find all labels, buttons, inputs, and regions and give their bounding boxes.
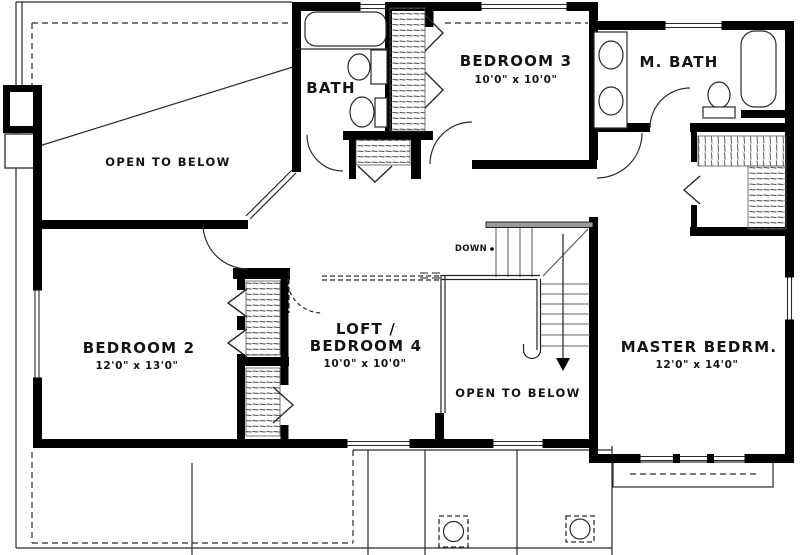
floor-plan: OPEN TO BELOW BATH BEDROOM 3 10'0" x 10'… [0, 0, 800, 555]
room-label-loft-line1: LOFT / [336, 320, 396, 338]
room-label-open-to-below-lower: OPEN TO BELOW [455, 386, 581, 400]
master-bedroom-door [597, 133, 642, 178]
bedroom3-closet-doors [425, 15, 443, 108]
mbath-tub-ledge [741, 110, 793, 118]
down-leader-dot [490, 247, 494, 251]
plan-linework [0, 0, 800, 555]
staircase [420, 222, 593, 413]
room-dims-bedroom2: 12'0" x 13'0" [95, 360, 178, 372]
bedroom2-door [203, 224, 248, 269]
diagonal-line [20, 66, 296, 152]
stair-break-line [543, 229, 588, 276]
stair-label-down: DOWN [455, 244, 487, 254]
bath-toilet-tank [375, 98, 387, 127]
room-dims-master-bedroom: 12'0" x 14'0" [655, 359, 738, 371]
mbath-toilet [708, 82, 730, 108]
bathtub [305, 12, 386, 46]
loft-dashed-wall [289, 271, 441, 313]
loft-optional-door [287, 278, 322, 313]
linen-closet-door [358, 166, 392, 182]
angled-railing [246, 170, 296, 219]
mbath-tub [741, 31, 776, 107]
room-label-master-bedroom: MASTER BEDRM. [621, 338, 778, 356]
bath-door [307, 135, 343, 171]
room-label-master-bath: M. BATH [640, 53, 719, 71]
down-arrow [556, 234, 570, 371]
master-bath-fixtures [594, 31, 793, 128]
bath-toilet [350, 97, 374, 127]
room-dims-loft: 10'0" x 10'0" [323, 358, 406, 370]
mbath-sink-1 [599, 41, 623, 69]
room-label-open-to-below-upper: OPEN TO BELOW [105, 155, 231, 169]
bath-sink [348, 54, 370, 80]
bedroom3-door [430, 122, 472, 164]
bath-sink-counter [371, 50, 387, 84]
mbath-toilet-tank [703, 107, 735, 118]
room-label-bath: BATH [306, 79, 355, 97]
room-label-loft-line2: BEDROOM 4 [310, 337, 423, 355]
mbath-sink-2 [599, 87, 623, 115]
room-dims-bedroom3: 10'0" x 10'0" [474, 74, 557, 86]
room-label-bedroom3: BEDROOM 3 [460, 52, 573, 70]
room-label-bedroom2: BEDROOM 2 [83, 339, 196, 357]
bath-fixtures [296, 12, 388, 127]
walkin-closet-door [684, 176, 700, 204]
master-bath-door [650, 88, 690, 128]
